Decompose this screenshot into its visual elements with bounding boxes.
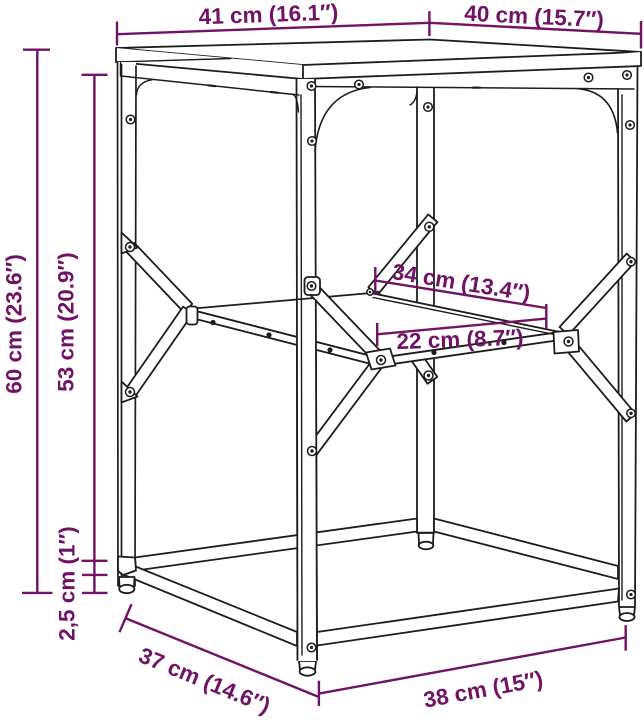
svg-text:53 cm (20.9″): 53 cm (20.9″): [54, 252, 79, 392]
svg-text:41 cm (16.1″): 41 cm (16.1″): [198, 0, 338, 29]
svg-text:60 cm (23.6″): 60 cm (23.6″): [1, 254, 26, 394]
svg-text:22 cm (8.7″): 22 cm (8.7″): [396, 325, 524, 354]
svg-text:2,5 cm (1″): 2,5 cm (1″): [54, 526, 79, 641]
